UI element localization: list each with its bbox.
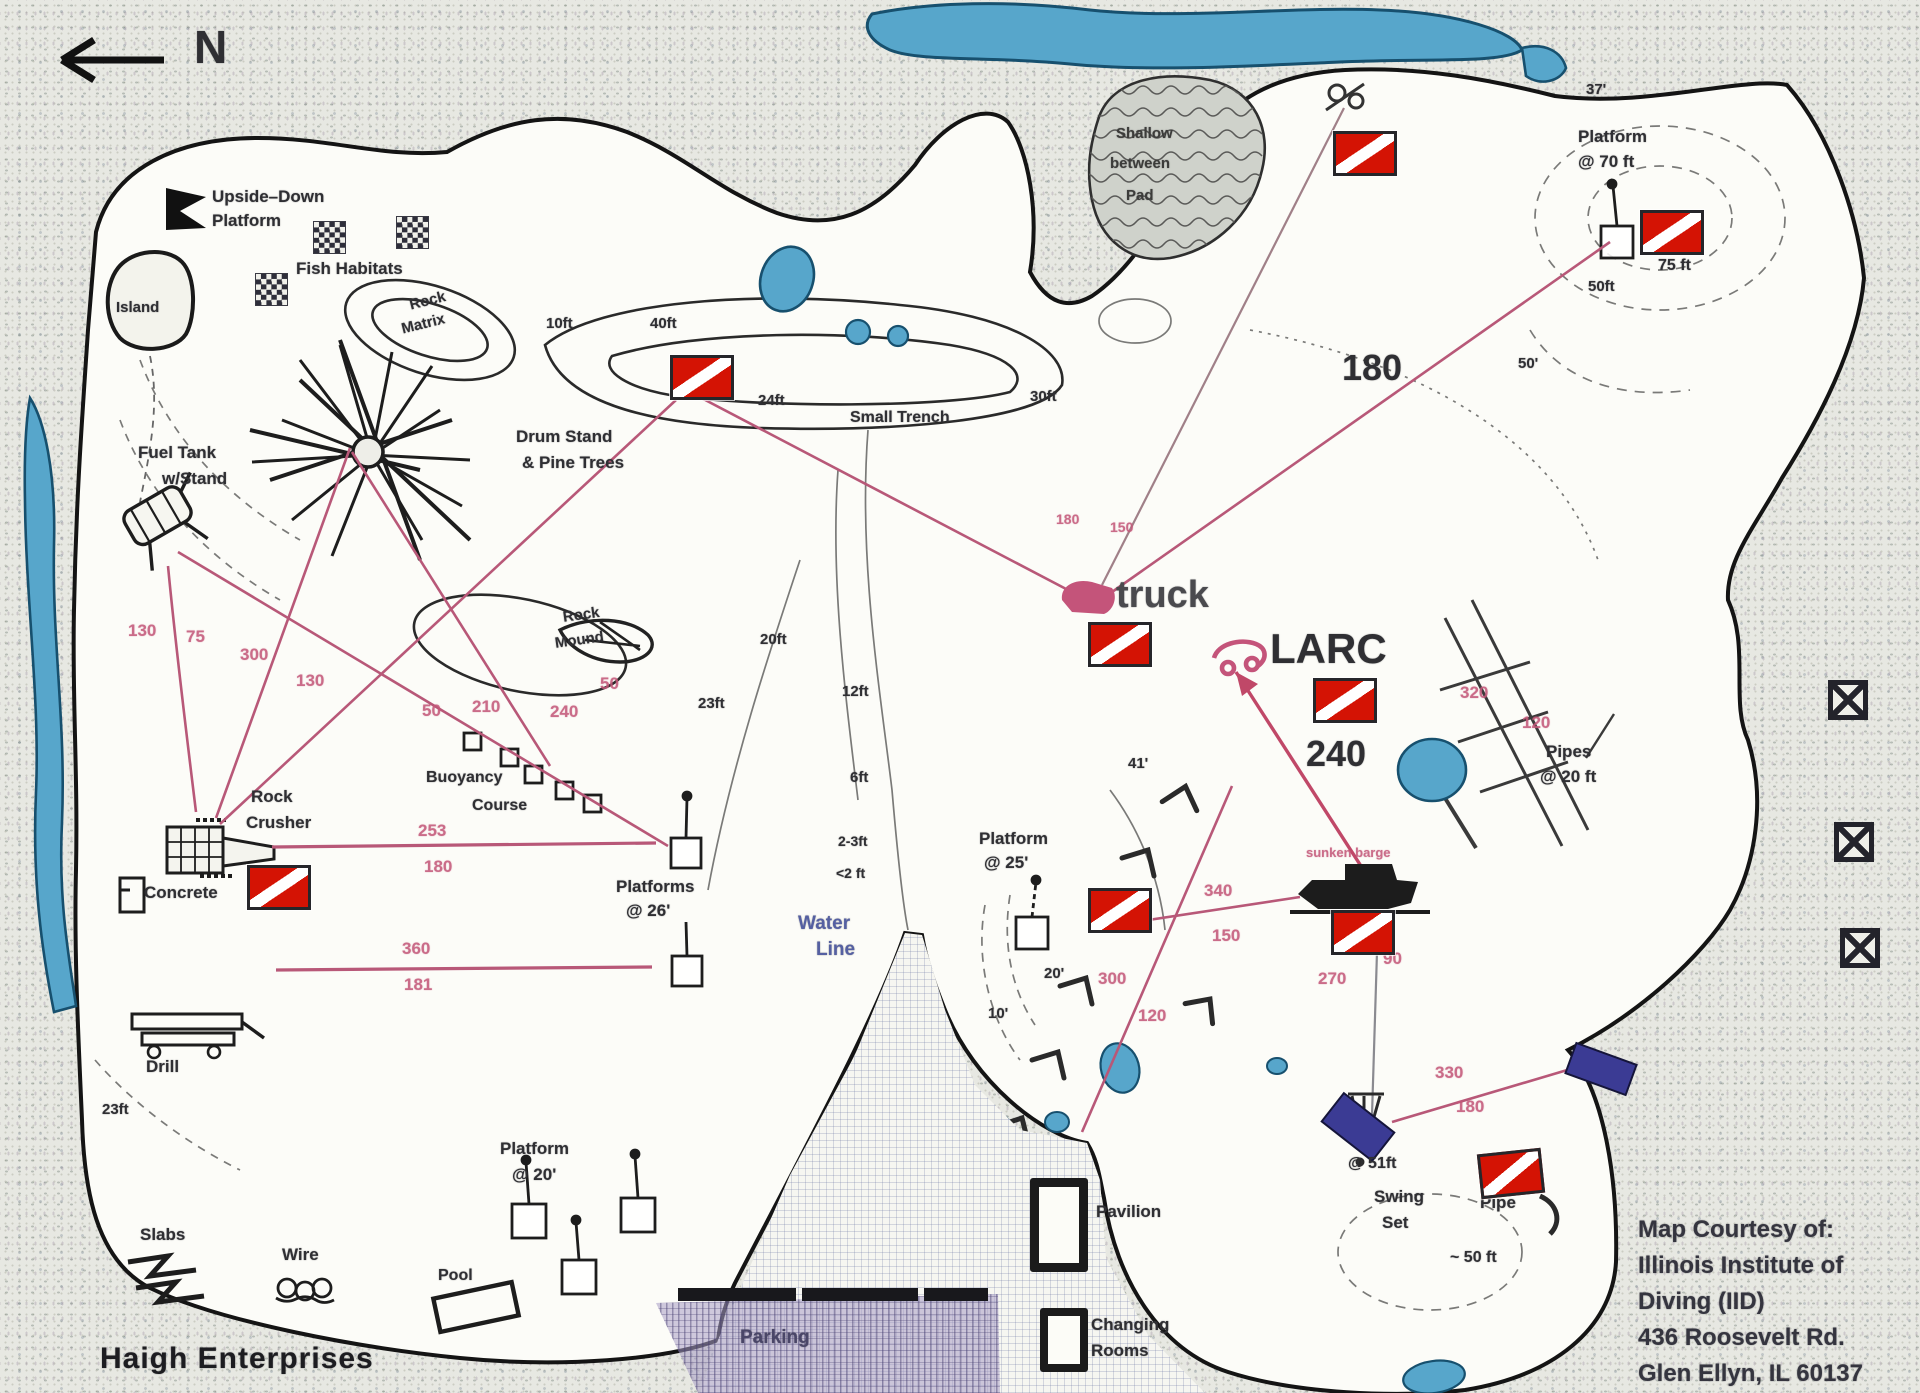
parking-curb-3 (924, 1288, 988, 1301)
depth-23ft: 23ft (698, 696, 725, 711)
distance-253: 253 (418, 822, 446, 839)
dive-flag-larc-icon (1313, 678, 1377, 723)
dive-flag-platform-70ft-icon (1640, 210, 1704, 255)
label-drum-stand-2: & Pine Trees (522, 454, 624, 471)
dive-flag-pipe-cove-icon (1477, 1148, 1545, 1199)
label-larc: LARC (1270, 628, 1387, 670)
label-buoyancy-1: Buoyancy (426, 770, 502, 786)
depth-50ft-ne: 50ft (1588, 279, 1615, 294)
distance-180-b: 180 (1456, 1098, 1484, 1115)
label-swing-1: Swing (1374, 1188, 1424, 1205)
depth-12ft: 12ft (842, 684, 869, 699)
credit-line-1: Map Courtesy of: (1638, 1212, 1863, 1248)
label-platforms26-2: @ 26' (626, 902, 670, 919)
distance-75: 75 (186, 628, 205, 645)
label-water-line-1: Water (798, 914, 850, 933)
depth-51ft: @ 51ft (1348, 1156, 1397, 1172)
parking-curb-1 (678, 1288, 796, 1301)
north-arrow-icon (62, 40, 164, 80)
label-upside-down-2: Platform (212, 212, 281, 229)
depth-10q: 10' (988, 1006, 1008, 1021)
label-water-line-2: Line (816, 940, 855, 959)
distance-270: 270 (1318, 970, 1346, 987)
depth-20q: 20' (1044, 966, 1064, 981)
label-swing-2: Set (1382, 1214, 1408, 1231)
label-upside-down-1: Upside–Down (212, 188, 324, 205)
distance-130-a: 130 (128, 622, 156, 639)
label-pavilion: Pavilion (1096, 1203, 1161, 1220)
depth-37q: 37' (1586, 82, 1606, 97)
credit-line-5: Glen Ellyn, IL 60137 (1638, 1356, 1863, 1392)
shore-marker-2-icon (1834, 822, 1874, 862)
label-parking: Parking (740, 1328, 810, 1347)
label-wire: Wire (282, 1246, 319, 1263)
shore-marker-1-icon (1828, 680, 1868, 720)
distance-300-a: 300 (240, 646, 268, 663)
label-pipes-2: @ 20 ft (1540, 768, 1596, 785)
distance-150-truck: 150 (1110, 520, 1133, 534)
label-pad-2: between (1110, 156, 1170, 171)
distance-180-truck: 180 (1056, 512, 1079, 526)
label-pad-3: Pad (1126, 188, 1154, 203)
label-dist-240-big: 240 (1306, 736, 1366, 772)
depth-2-3ft: 2-3ft (838, 834, 868, 848)
distance-300-b: 300 (1098, 970, 1126, 987)
distance-210: 210 (472, 698, 500, 715)
label-fuel-tank-1: Fuel Tank (138, 444, 216, 461)
label-small-trench: Small Trench (850, 410, 950, 426)
depth-20ft: 20ft (760, 632, 787, 647)
fish-habitat-square-3-icon (255, 273, 288, 306)
depth-lt2ft: <2 ft (836, 866, 865, 880)
dive-flag-trench-icon (670, 355, 734, 400)
distance-340: 340 (1204, 882, 1232, 899)
distance-330: 330 (1435, 1064, 1463, 1081)
distance-240: 240 (550, 703, 578, 720)
label-pool: Pool (438, 1268, 473, 1284)
distance-180-a: 180 (424, 858, 452, 875)
fish-habitat-square-2-icon (396, 216, 429, 249)
label-fish-habitats: Fish Habitats (296, 260, 403, 277)
label-north: N (194, 24, 227, 70)
distance-50-a: 50 (422, 702, 441, 719)
changing-rooms-building (1040, 1308, 1088, 1372)
distance-360: 360 (402, 940, 430, 957)
credit-line-2: Illinois Institute of (1638, 1248, 1863, 1284)
distance-120-a: 120 (1138, 1007, 1166, 1024)
label-platform70-2: @ 70 ft (1578, 153, 1634, 170)
depth-41q: 41' (1128, 756, 1148, 771)
label-rock-crusher-2: Crusher (246, 814, 311, 831)
parking-curb-2 (802, 1288, 918, 1301)
label-platform70-1: Platform (1578, 128, 1647, 145)
depth-6ft: 6ft (850, 770, 868, 785)
label-drill: Drill (146, 1058, 179, 1075)
credit-block: Map Courtesy of: Illinois Institute of D… (1638, 1212, 1863, 1392)
dive-flag-barge-icon (1331, 910, 1395, 955)
distance-50-b: 50 (600, 675, 619, 692)
label-truck: truck (1116, 576, 1209, 614)
label-concrete: Concrete (144, 884, 218, 901)
credit-line-4: 436 Roosevelt Rd. (1638, 1320, 1863, 1356)
label-buoyancy-2: Course (472, 798, 527, 814)
depth-30ft: 30ft (1030, 389, 1057, 404)
depth-10ft: 10ft (546, 316, 573, 331)
dive-flag-truck-icon (1088, 622, 1152, 667)
distance-120-b: 120 (1522, 714, 1550, 731)
depth-50ft-cove: ~ 50 ft (1450, 1250, 1497, 1266)
label-island: Island (116, 300, 159, 315)
distance-181: 181 (404, 976, 432, 993)
label-changing-2: Rooms (1091, 1342, 1149, 1359)
depth-24ft: 24ft (758, 393, 785, 408)
depth-23ft-sw: 23ft (102, 1102, 129, 1117)
depth-40ft: 40ft (650, 316, 677, 331)
map-title: Haigh Enterprises (100, 1344, 374, 1374)
label-pipes-1: Pipes (1546, 743, 1591, 760)
depth-75ft: 75 ft (1658, 258, 1691, 274)
credit-line-3: Diving (IID) (1638, 1284, 1863, 1320)
pavilion-building (1030, 1178, 1088, 1272)
label-changing-1: Changing (1091, 1316, 1169, 1333)
dive-flag-platform-25ft-icon (1088, 888, 1152, 933)
dive-flag-north-buoy-icon (1333, 131, 1397, 176)
label-platform20-2: @ 20' (512, 1166, 556, 1183)
label-drum-stand-1: Drum Stand (516, 428, 612, 445)
dive-site-map: NUpside–DownPlatformFish HabitatsIslandR… (0, 0, 1920, 1393)
label-barge: sunken barge (1306, 846, 1391, 859)
shore-marker-3-icon (1840, 928, 1880, 968)
label-slabs: Slabs (140, 1226, 185, 1243)
label-pad-1: Shallow (1116, 126, 1173, 141)
label-dist-180-big: 180 (1342, 350, 1402, 386)
dive-flag-rock-crusher-icon (247, 865, 311, 910)
label-rock-crusher-1: Rock (251, 788, 293, 805)
distance-130-b: 130 (296, 672, 324, 689)
label-platform25-2: @ 25' (984, 854, 1028, 871)
label-platform25-1: Platform (979, 830, 1048, 847)
fish-habitat-square-1-icon (313, 221, 346, 254)
depth-50q: 50' (1518, 356, 1538, 371)
label-platforms26-1: Platforms (616, 878, 694, 895)
label-platform20-1: Platform (500, 1140, 569, 1157)
label-fuel-tank-2: w/Stand (162, 470, 227, 487)
distance-320: 320 (1460, 684, 1488, 701)
distance-150: 150 (1212, 927, 1240, 944)
